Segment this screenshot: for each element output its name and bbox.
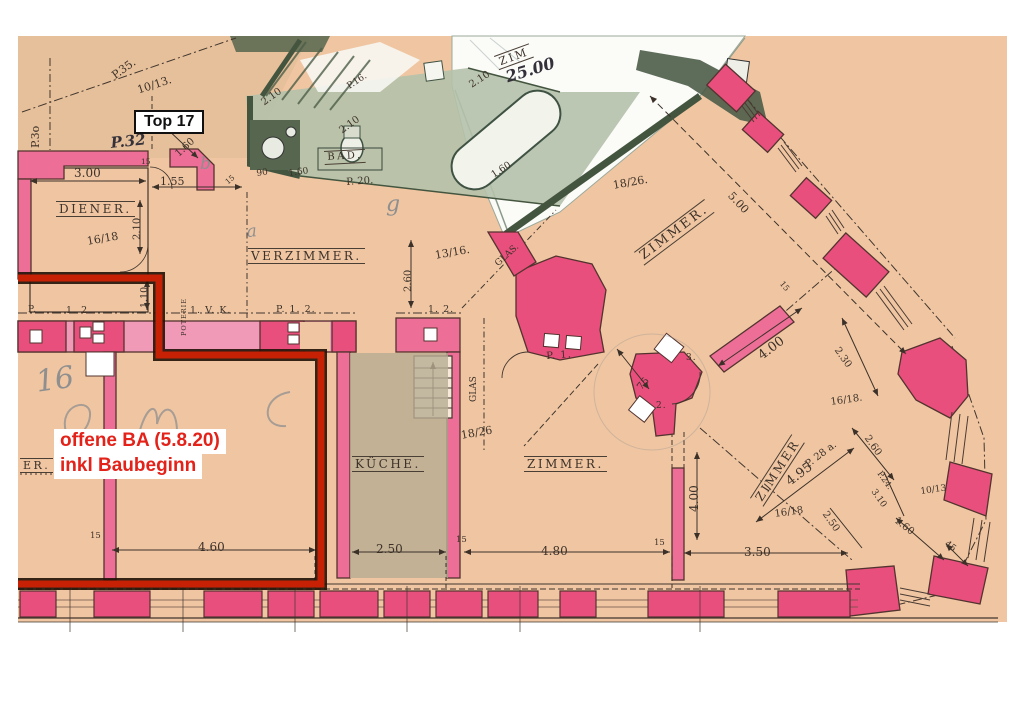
corridor-pier — [516, 256, 606, 360]
annotation-note-line2: inkl Baubeginn — [54, 454, 202, 479]
chimney-box — [86, 352, 114, 376]
plan-drawing — [0, 0, 1024, 724]
kitchen-wash — [350, 353, 448, 578]
top-badge: Top 17 — [134, 110, 204, 134]
scanned-floor-plan: DIENER.VERZIMMER.ZIMMER.ZIMMER.KÜCHE.ZIM… — [0, 0, 1024, 724]
annotation-note: offene BA (5.8.20) inkl Baubeginn — [54, 429, 226, 479]
annotation-note-line1: offene BA (5.8.20) — [54, 429, 226, 454]
